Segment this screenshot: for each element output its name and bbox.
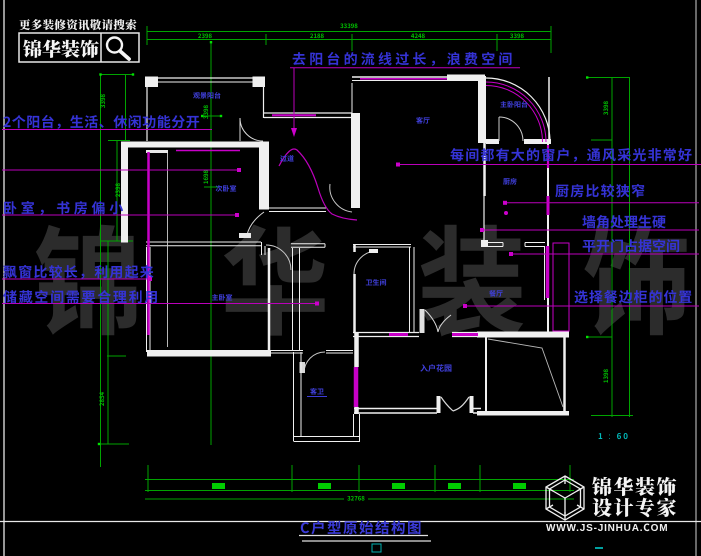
svg-text:观景阳台: 观景阳台: [193, 91, 221, 101]
svg-text:4248: 4248: [411, 31, 426, 40]
svg-text:过道: 过道: [280, 154, 294, 164]
svg-text:入户花园: 入户花园: [420, 363, 452, 374]
svg-text:客卫: 客卫: [310, 387, 324, 397]
svg-text:次卧室: 次卧室: [216, 184, 237, 194]
svg-text:卫生间: 卫生间: [366, 278, 387, 288]
svg-text:墙角处理生硬: 墙角处理生硬: [582, 212, 666, 232]
svg-text:33398: 33398: [340, 21, 358, 30]
svg-text:锦华装饰: 锦华装饰: [23, 35, 99, 62]
svg-text:选择餐边柜的位置: 选择餐边柜的位置: [574, 287, 693, 307]
svg-text:设计专家: 设计专家: [592, 492, 678, 521]
svg-text:储藏空间需要合理利用: 储藏空间需要合理利用: [3, 287, 160, 307]
svg-text:客厅: 客厅: [416, 116, 430, 126]
svg-text:WWW.JS-JINHUA.COM: WWW.JS-JINHUA.COM: [546, 519, 668, 534]
svg-text:卧室，书房偏小: 卧室，书房偏小: [3, 198, 127, 218]
svg-text:3398: 3398: [510, 31, 525, 40]
svg-text:1698: 1698: [201, 169, 210, 184]
svg-text:飘窗比较长，利用起来: 飘窗比较长，利用起来: [3, 262, 155, 282]
svg-text:每间都有大的窗户，通风采光非常好: 每间都有大的窗户，通风采光非常好: [450, 145, 693, 165]
svg-text:3398: 3398: [601, 100, 610, 115]
svg-text:厨房: 厨房: [503, 177, 517, 187]
svg-text:2188: 2188: [310, 31, 325, 40]
svg-text:去阳台的流线过长，浪费空间: 去阳台的流线过长，浪费空间: [292, 49, 516, 69]
svg-text:平开门占据空间: 平开门占据空间: [582, 236, 680, 256]
svg-text:2398: 2398: [113, 182, 122, 197]
svg-text:1398: 1398: [601, 368, 610, 383]
svg-text:更多装修资讯敬请搜索: 更多装修资讯敬请搜索: [19, 17, 137, 33]
svg-text:主卧室: 主卧室: [212, 293, 233, 303]
svg-text:C户型原始结构图: C户型原始结构图: [300, 517, 423, 538]
svg-text:1 : 60: 1 : 60: [598, 431, 630, 442]
svg-text:2398: 2398: [198, 31, 213, 40]
svg-text:3398: 3398: [98, 93, 107, 108]
svg-text:厨房比较狭窄: 厨房比较狭窄: [555, 181, 646, 201]
svg-text:餐厅: 餐厅: [489, 289, 503, 299]
svg-text:2854: 2854: [97, 391, 106, 406]
svg-text:32768: 32768: [347, 494, 365, 503]
svg-text:2个阳台，生活、休闲功能分开: 2个阳台，生活、休闲功能分开: [3, 112, 200, 132]
svg-text:主卧阳台: 主卧阳台: [500, 100, 528, 110]
